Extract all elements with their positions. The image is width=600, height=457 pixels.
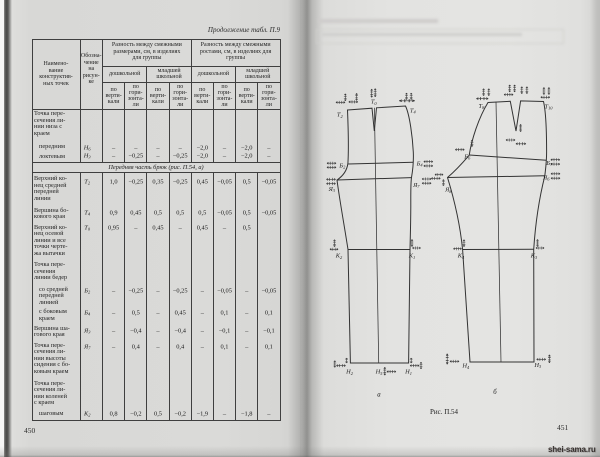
svg-text:Т0: Т0 — [371, 99, 378, 106]
svg-text:Т2: Т2 — [337, 112, 344, 119]
svg-text:К3: К3 — [530, 253, 538, 260]
svg-text:Рис. П.54: Рис. П.54 — [430, 408, 459, 416]
svg-text:Т8: Т8 — [479, 103, 486, 110]
svg-text:а: а — [377, 392, 381, 399]
svg-text:К4: К4 — [457, 253, 465, 260]
svg-text:Я6: Я6 — [542, 174, 550, 181]
svg-text:Б2: Б2 — [338, 162, 346, 169]
svg-text:Н1: Н1 — [404, 369, 412, 376]
svg-text:Н3: Н3 — [533, 362, 542, 369]
svg-text:Т10: Т10 — [545, 103, 554, 110]
svg-text:Я8: Я8 — [444, 187, 452, 194]
svg-text:Т4: Т4 — [410, 107, 417, 114]
svg-text:Я7: Я7 — [412, 182, 420, 189]
svg-text:б: б — [493, 389, 497, 396]
svg-text:Я3: Я3 — [328, 186, 336, 193]
svg-text:Н5: Н5 — [375, 369, 384, 376]
svg-text:Н4: Н4 — [461, 363, 470, 370]
svg-text:Б7: Б7 — [545, 160, 553, 167]
svg-text:Б6: Б6 — [463, 153, 471, 160]
svg-text:Н2: Н2 — [345, 369, 354, 376]
svg-text:К1: К1 — [408, 253, 415, 260]
svg-text:К2: К2 — [335, 253, 343, 260]
svg-text:Б4: Б4 — [416, 160, 424, 167]
